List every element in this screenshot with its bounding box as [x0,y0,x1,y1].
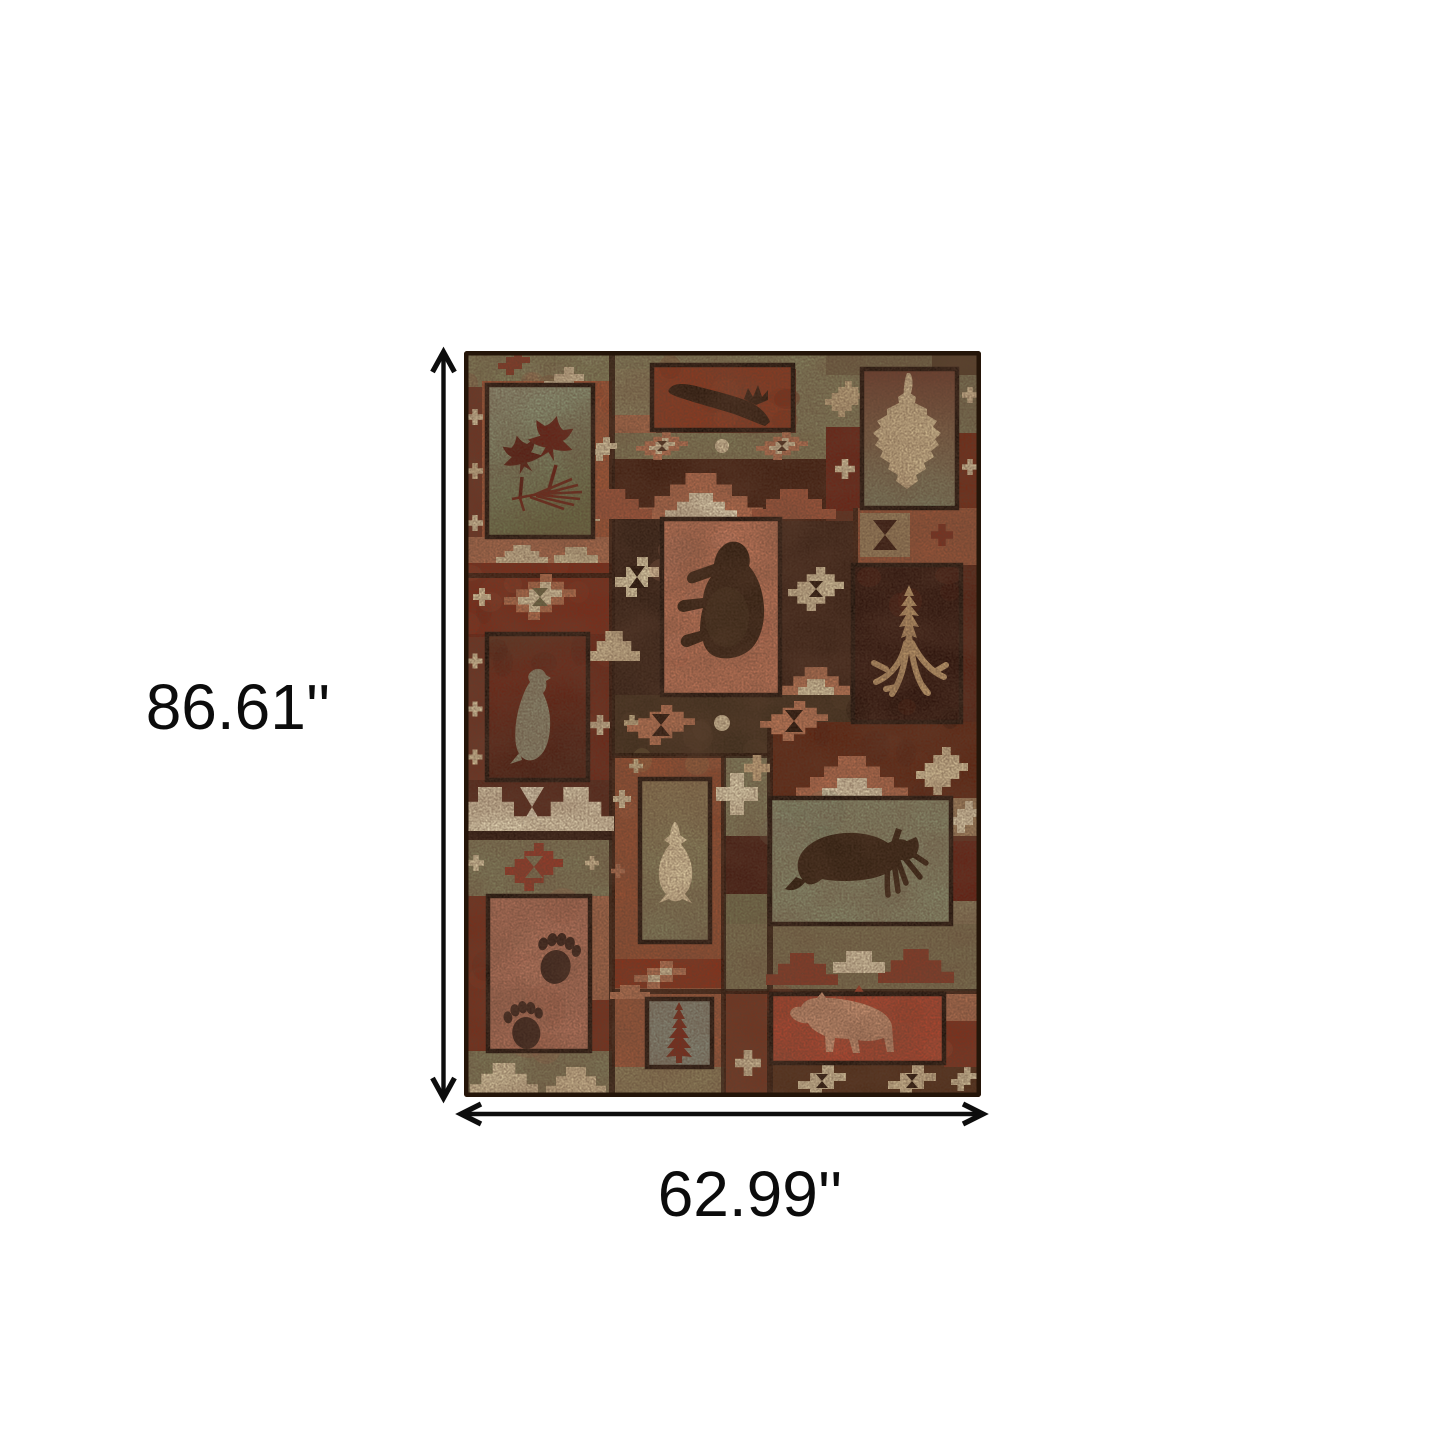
svg-text:62.99'': 62.99'' [658,1158,843,1230]
svg-text:86.61'': 86.61'' [146,671,331,743]
